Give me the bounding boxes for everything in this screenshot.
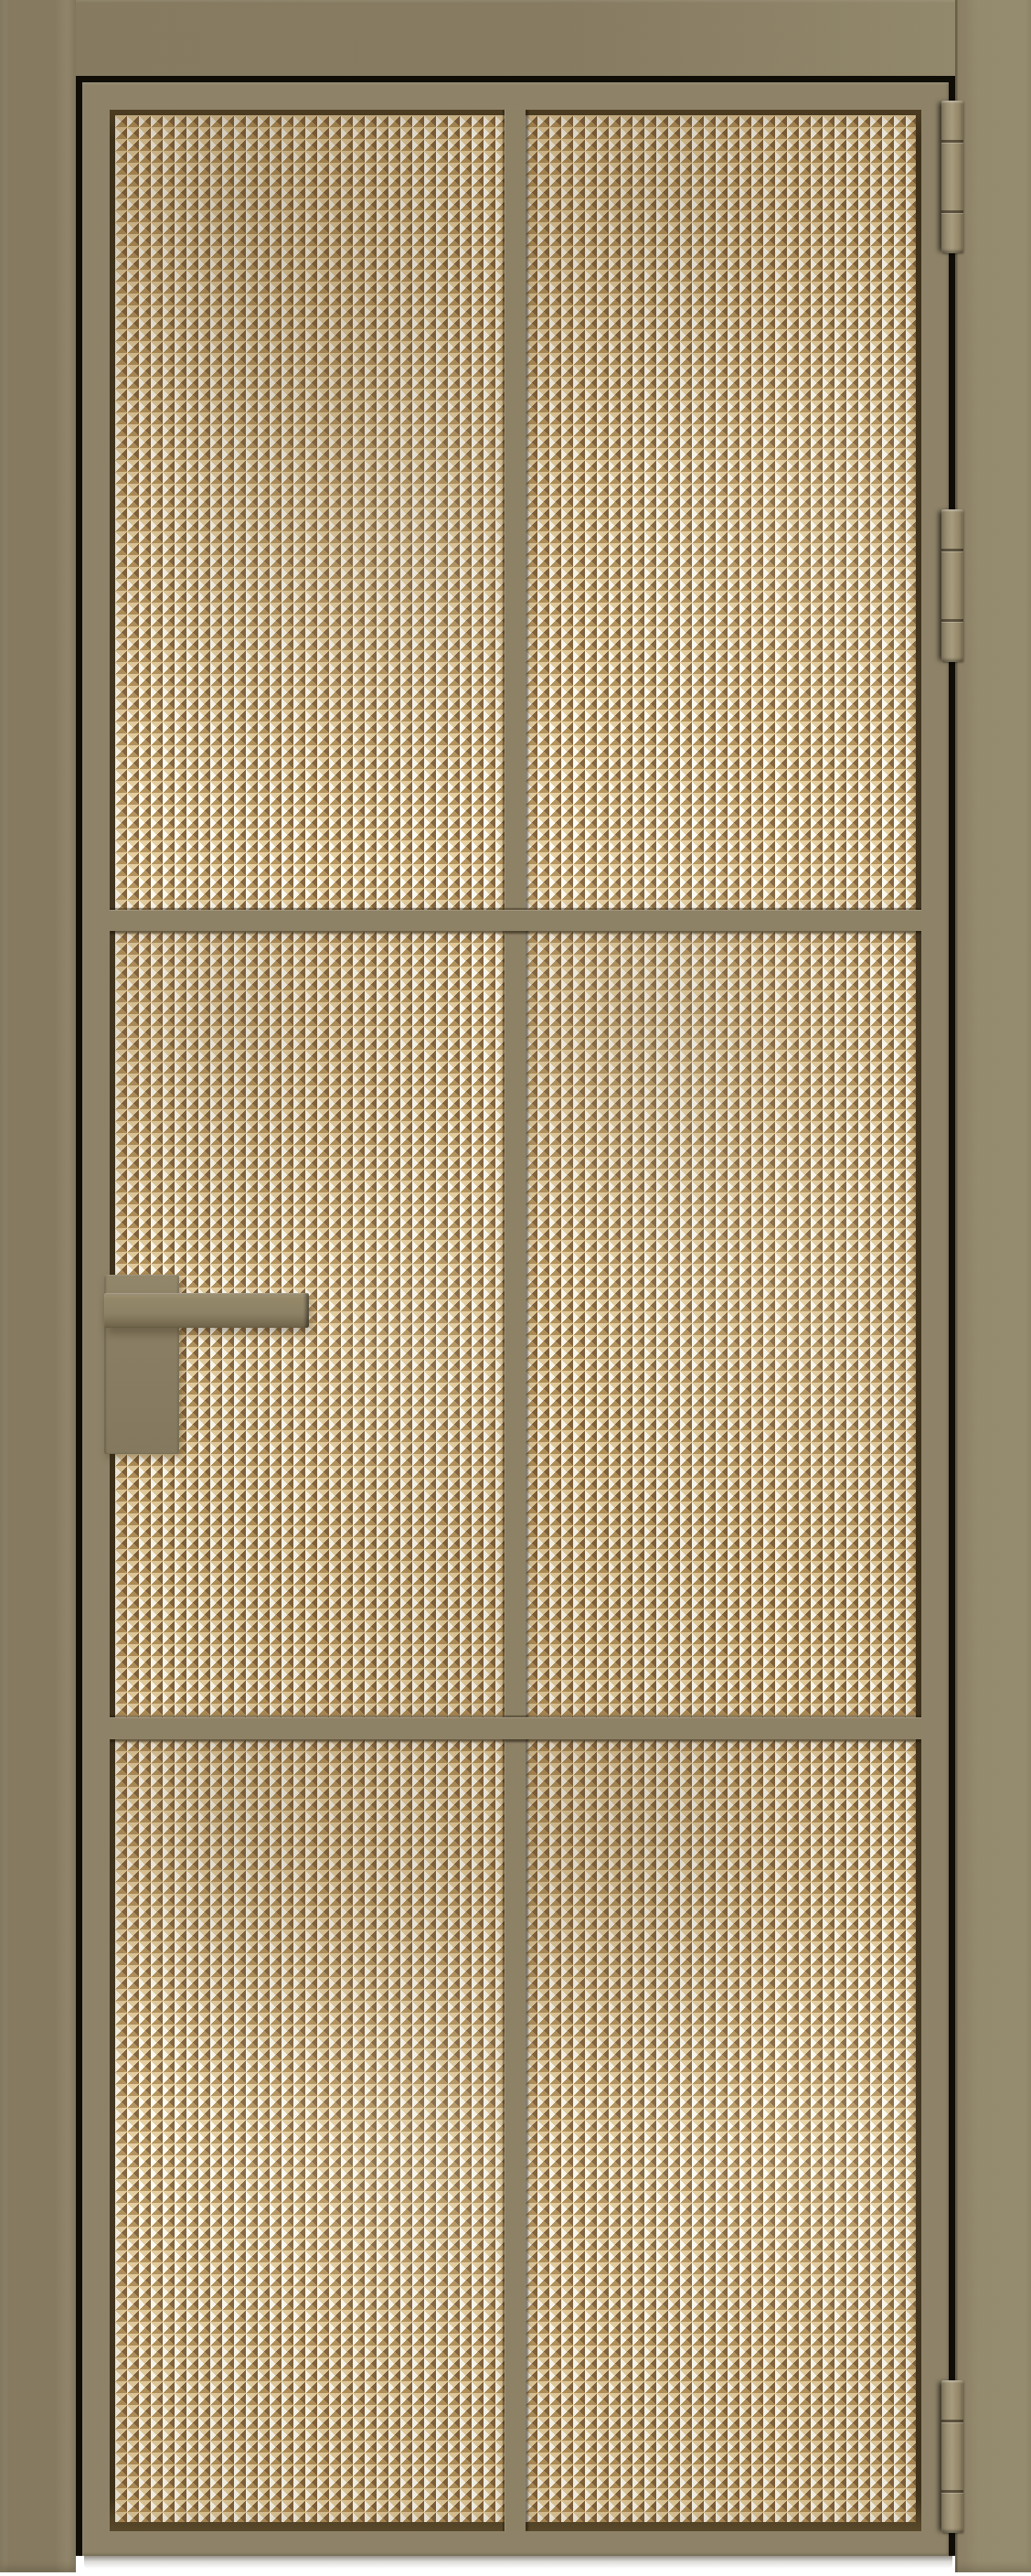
door-hinge-bottom bbox=[941, 2380, 963, 2533]
door-frame-left-jamb bbox=[0, 0, 76, 2572]
muntin-horizontal-1 bbox=[110, 910, 921, 931]
muntin-horizontal-2 bbox=[110, 1717, 921, 1739]
glass-panel-r3-c2 bbox=[526, 1739, 916, 2522]
floor-shadow bbox=[84, 2556, 952, 2569]
glass-panel-r1-c2 bbox=[526, 115, 916, 910]
glass-panel-r1-c1 bbox=[115, 115, 505, 910]
muntin-vertical bbox=[505, 110, 526, 2531]
hinge-knuckle-seam bbox=[941, 2490, 963, 2493]
hinge-knuckle-seam bbox=[941, 140, 963, 143]
glass-panel-r3-c1 bbox=[115, 1739, 505, 2522]
door-frame-right-jamb bbox=[955, 0, 1031, 2572]
door-hinge-middle bbox=[941, 509, 963, 662]
hinge-knuckle-seam bbox=[941, 549, 963, 551]
door-hinge-top bbox=[941, 101, 963, 253]
glass-panel-r2-c2 bbox=[526, 931, 916, 1717]
hinge-knuckle-seam bbox=[941, 2420, 963, 2422]
handle-lever bbox=[104, 1293, 309, 1328]
door-product-image bbox=[0, 0, 1031, 2576]
hinge-knuckle-seam bbox=[941, 619, 963, 622]
hinge-knuckle-seam bbox=[941, 210, 963, 213]
door-frame-header bbox=[0, 0, 1031, 76]
